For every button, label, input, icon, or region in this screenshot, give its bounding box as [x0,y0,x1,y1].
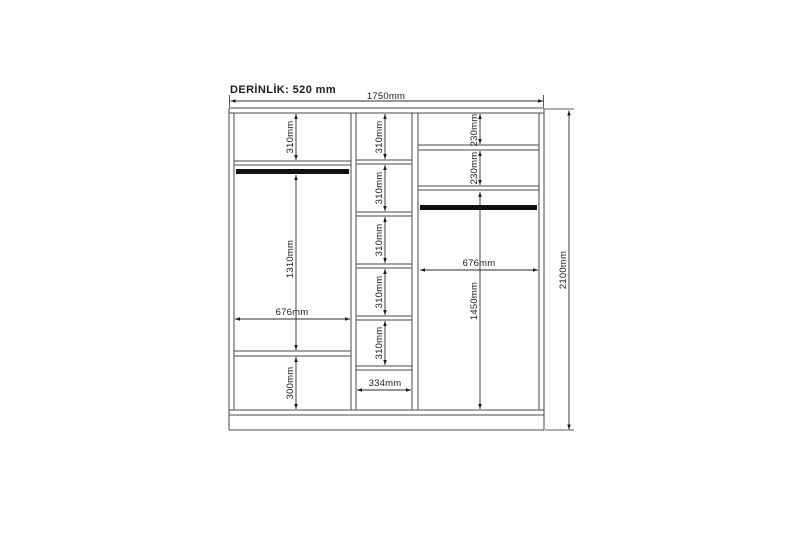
right-section-2-label: 230mm [469,152,480,185]
middle-section-4-label: 310mm [374,276,385,309]
right-width-label: 676mm [463,258,496,269]
drawing-title: DERİNLİK: 520 mm [230,83,336,96]
overall-height-dimension: 2100mm [545,109,574,430]
vertical-dividers [351,113,418,410]
left-bottom-section-label: 300mm [285,367,296,400]
left-column-dimensions: 310mm 1310mm 676mm 300mm [235,114,350,409]
left-top-section-label: 310mm [285,121,296,154]
overall-height-label: 2100mm [558,251,569,289]
middle-section-5-label: 310mm [374,327,385,360]
overall-width-label: 1750mm [367,91,405,102]
middle-section-1-label: 310mm [374,121,385,154]
right-hanging-section-label: 1450mm [469,282,480,320]
left-hanging-rod [236,169,349,174]
right-section-1-label: 230mm [469,114,480,147]
middle-section-2-label: 310mm [374,172,385,205]
right-hanging-rod [420,205,537,210]
middle-width-label: 334mm [369,378,402,389]
drawing-svg: DERİNLİK: 520 mm [0,0,800,533]
middle-column-dimensions: 310mm 310mm 310mm 310mm 310mm 334mm [357,114,411,390]
right-column-dimensions: 230mm 230mm 676mm 1450mm [420,114,538,409]
left-hanging-section-label: 1310mm [285,240,296,278]
wardrobe-dimension-drawing: DERİNLİK: 520 mm [0,0,800,533]
middle-section-3-label: 310mm [374,224,385,257]
left-width-label: 676mm [276,307,309,318]
